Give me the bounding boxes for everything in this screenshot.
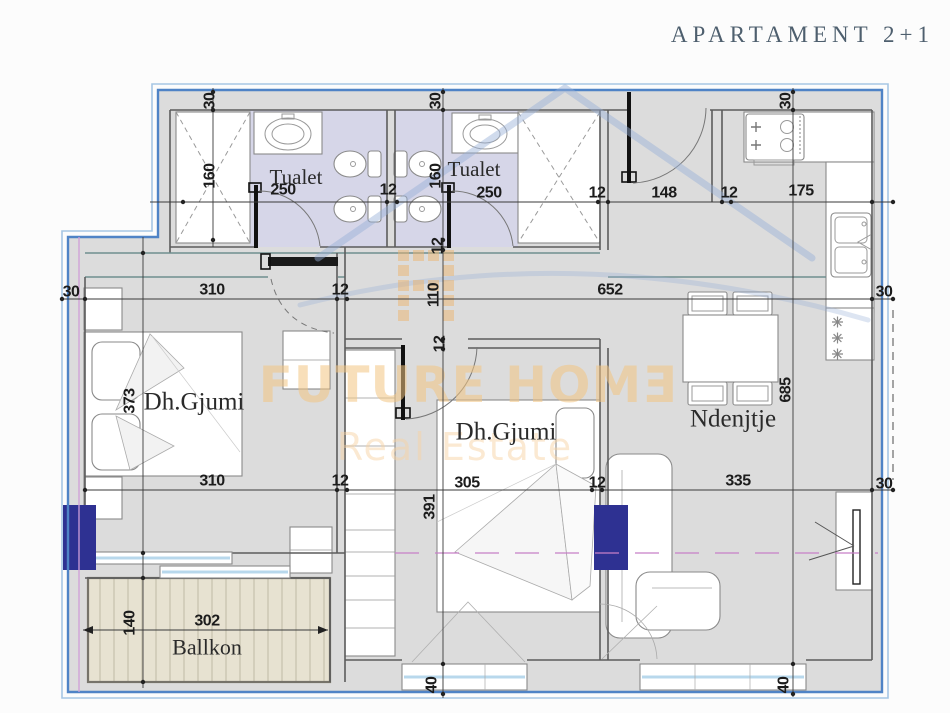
kitchen-sink <box>831 213 872 277</box>
dimension-label: 12 <box>332 473 349 490</box>
room-label: Ballkon <box>172 635 242 660</box>
room-label: Ndenjtje <box>690 406 776 433</box>
dimension-label: 30 <box>876 476 893 493</box>
floorplan-drawing: FUTURE HOMƎ Real Estate <box>0 0 950 713</box>
dimension-label: 302 <box>194 613 220 630</box>
dimension-label: 652 <box>597 282 623 299</box>
dimension-label: 30 <box>428 92 445 109</box>
shower2 <box>518 112 600 243</box>
tv-panel <box>853 510 860 584</box>
room-label: Tualet <box>270 165 323 189</box>
sill-cabinet <box>290 527 332 573</box>
stove <box>746 114 804 165</box>
dimension-label: 250 <box>476 185 502 202</box>
dimension-label: 685 <box>778 377 795 403</box>
dimension-label: 335 <box>725 473 751 490</box>
dimension-label: 160 <box>202 163 219 189</box>
dimension-label: 310 <box>199 282 225 299</box>
room-label: Dh.Gjumi <box>144 389 245 416</box>
dimension-label: 140 <box>122 610 139 636</box>
nightstand1 <box>84 288 122 330</box>
dimension-label: 30 <box>778 92 795 109</box>
column-center <box>594 505 628 570</box>
dimension-label: 110 <box>426 282 443 307</box>
dimension-label: 175 <box>788 183 814 200</box>
toilet1 <box>334 151 381 177</box>
room-label: Tualet <box>448 157 501 181</box>
dimension-label: 12 <box>430 237 447 254</box>
dimension-label: 30 <box>202 92 219 109</box>
dimension-label: 30 <box>63 284 80 301</box>
dimension-label: 148 <box>651 185 677 202</box>
dimension-label: 12 <box>432 335 449 352</box>
dimension-label: 12 <box>380 182 397 199</box>
watermark-title: FUTURE HOMƎ <box>259 356 678 414</box>
dimension-label: 40 <box>776 676 793 693</box>
dimension-label: 391 <box>422 494 439 520</box>
dimension-label: 30 <box>876 284 893 301</box>
dimension-label: 160 <box>428 163 445 189</box>
dimension-label: 310 <box>199 473 225 490</box>
dimension-label: 373 <box>122 388 139 414</box>
dimension-label: 12 <box>332 282 349 299</box>
dimension-label: 12 <box>589 185 606 202</box>
dimension-label: 305 <box>454 475 480 492</box>
room-label: Dh.Gjumi <box>456 419 557 446</box>
floorplan-page: APARTAMENT 2+1 <box>0 0 950 713</box>
dimension-label: 12 <box>721 185 738 202</box>
dimension-label: 12 <box>589 475 606 492</box>
dimension-label: 40 <box>424 676 441 693</box>
